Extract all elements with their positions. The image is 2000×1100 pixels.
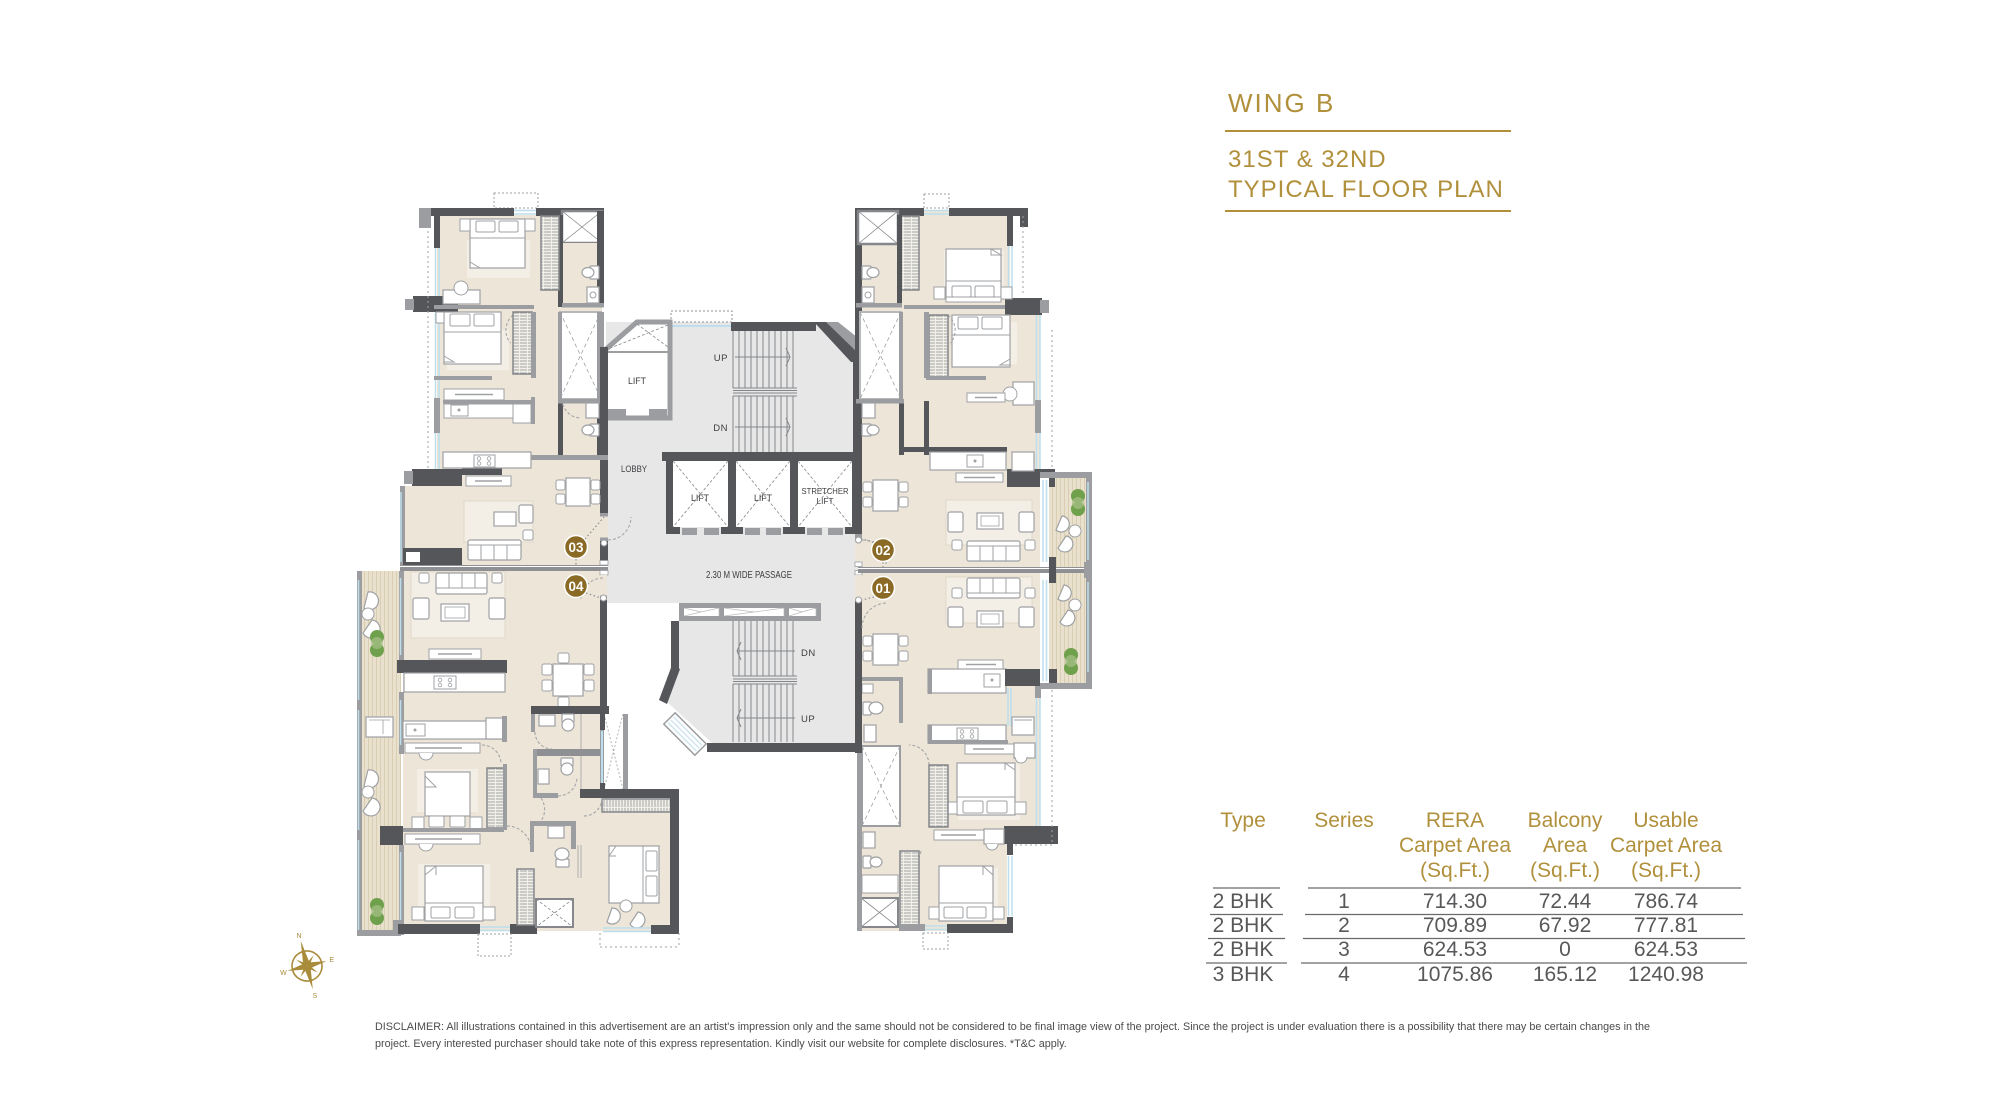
- svg-text:E: E: [329, 957, 334, 964]
- svg-text:165.12: 165.12: [1533, 963, 1597, 986]
- svg-text:LOBBY: LOBBY: [621, 464, 648, 475]
- svg-text:LIFT: LIFT: [754, 493, 772, 503]
- svg-text:LIFT: LIFT: [817, 497, 834, 506]
- svg-text:1: 1: [1338, 890, 1350, 913]
- svg-text:UP: UP: [801, 714, 815, 725]
- svg-text:02: 02: [875, 543, 890, 558]
- svg-text:RERA: RERA: [1426, 809, 1484, 832]
- svg-text:3 BHK: 3 BHK: [1213, 963, 1274, 986]
- svg-text:project. Every interested purc: project. Every interested purchaser shou…: [375, 1038, 1067, 1050]
- svg-text:WING B: WING B: [1228, 88, 1335, 118]
- svg-text:S: S: [313, 993, 318, 1000]
- svg-text:2 BHK: 2 BHK: [1213, 890, 1274, 913]
- svg-text:Carpet Area: Carpet Area: [1399, 834, 1511, 857]
- svg-text:2 BHK: 2 BHK: [1213, 938, 1274, 961]
- svg-text:(Sq.Ft.): (Sq.Ft.): [1530, 859, 1600, 882]
- svg-text:2.30 M WIDE PASSAGE: 2.30 M WIDE PASSAGE: [706, 570, 792, 581]
- svg-text:DISCLAIMER: All illustrations: DISCLAIMER: All illustrations contained …: [375, 1021, 1650, 1033]
- svg-text:LIFT: LIFT: [628, 376, 646, 387]
- svg-text:DN: DN: [713, 423, 728, 434]
- svg-text:714.30: 714.30: [1423, 890, 1487, 913]
- svg-text:TYPICAL FLOOR PLAN: TYPICAL FLOOR PLAN: [1228, 176, 1504, 203]
- svg-text:31ST & 32ND: 31ST & 32ND: [1228, 146, 1387, 173]
- svg-text:Area: Area: [1543, 834, 1588, 857]
- svg-text:W: W: [280, 970, 287, 977]
- svg-text:03: 03: [568, 540, 584, 555]
- svg-text:Type: Type: [1220, 809, 1266, 832]
- svg-text:Carpet Area: Carpet Area: [1610, 834, 1722, 857]
- svg-text:2 BHK: 2 BHK: [1213, 914, 1274, 937]
- svg-text:UP: UP: [714, 353, 728, 364]
- svg-text:Series: Series: [1314, 809, 1374, 832]
- svg-text:N: N: [296, 933, 301, 940]
- svg-text:777.81: 777.81: [1634, 914, 1698, 937]
- svg-text:01: 01: [875, 581, 891, 596]
- svg-text:DN: DN: [801, 648, 816, 659]
- svg-text:0: 0: [1559, 938, 1571, 961]
- svg-text:Balcony: Balcony: [1528, 809, 1603, 832]
- svg-text:4: 4: [1338, 963, 1350, 986]
- svg-text:2: 2: [1338, 914, 1350, 937]
- svg-text:624.53: 624.53: [1423, 938, 1487, 961]
- svg-text:LIFT: LIFT: [691, 493, 709, 503]
- svg-text:786.74: 786.74: [1634, 890, 1699, 913]
- svg-text:72.44: 72.44: [1539, 890, 1592, 913]
- svg-text:(Sq.Ft.): (Sq.Ft.): [1631, 859, 1701, 882]
- svg-text:1240.98: 1240.98: [1628, 963, 1704, 986]
- svg-text:3: 3: [1338, 938, 1350, 961]
- svg-text:67.92: 67.92: [1539, 914, 1592, 937]
- svg-text:(Sq.Ft.): (Sq.Ft.): [1420, 859, 1490, 882]
- svg-text:Usable: Usable: [1633, 809, 1698, 832]
- svg-text:624.53: 624.53: [1634, 938, 1698, 961]
- svg-text:04: 04: [568, 579, 584, 594]
- svg-text:STRETCHER: STRETCHER: [802, 487, 849, 496]
- svg-text:1075.86: 1075.86: [1417, 963, 1493, 986]
- svg-text:709.89: 709.89: [1423, 914, 1487, 937]
